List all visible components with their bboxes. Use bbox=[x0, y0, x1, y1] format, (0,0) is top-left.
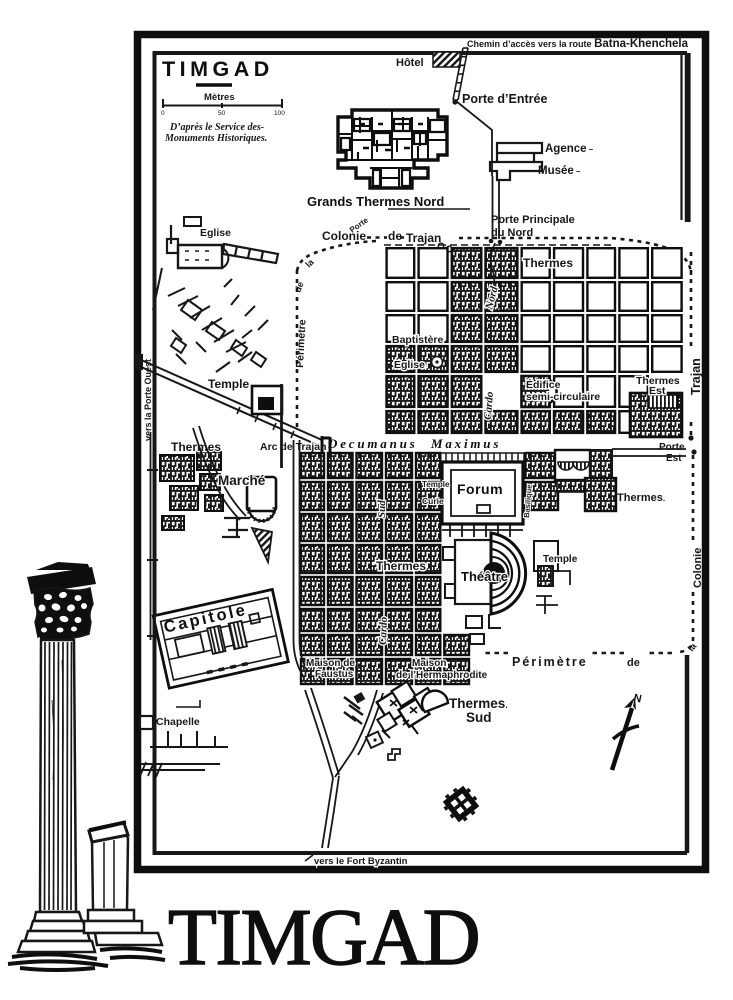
svg-text:Porte d’Entrée: Porte d’Entrée bbox=[462, 92, 547, 106]
svg-text:Périmètre: Périmètre bbox=[512, 655, 588, 669]
svg-text:Cardo: Cardo bbox=[482, 391, 496, 420]
svg-text:Thermes: Thermes bbox=[171, 440, 221, 454]
svg-text:Eglise: Eglise bbox=[394, 359, 425, 371]
svg-text:Est: Est bbox=[649, 385, 666, 397]
svg-text:Porte Principale: Porte Principale bbox=[491, 214, 575, 226]
svg-text:Hôtel: Hôtel bbox=[396, 57, 424, 69]
svg-text:Théâtre: Théâtre bbox=[461, 569, 508, 584]
svg-text:TIMGAD: TIMGAD bbox=[162, 57, 274, 81]
svg-text:Sud: Sud bbox=[466, 710, 492, 725]
svg-text:D’après le Service des-: D’après le Service des- bbox=[169, 122, 264, 133]
svg-text:Colonie: Colonie bbox=[692, 548, 704, 588]
svg-text:Maison de: Maison de bbox=[306, 658, 355, 669]
svg-text:de l’Hermaphrodite: de l’Hermaphrodite bbox=[396, 670, 488, 681]
svg-text:Colonie: Colonie bbox=[322, 229, 366, 243]
svg-text:Faustus: Faustus bbox=[315, 669, 354, 680]
svg-text:de: de bbox=[388, 229, 402, 243]
svg-text:Maison: Maison bbox=[412, 658, 446, 669]
svg-text:vers le Fort Byzantin: vers le Fort Byzantin bbox=[314, 856, 408, 867]
svg-text:Monuments Historiques.: Monuments Historiques. bbox=[164, 133, 267, 144]
svg-text:Porte: Porte bbox=[659, 442, 685, 453]
svg-text:0: 0 bbox=[161, 110, 165, 117]
svg-text:Mètres: Mètres bbox=[204, 92, 235, 103]
svg-text:Maximus: Maximus bbox=[430, 436, 501, 451]
svg-text:Thermes: Thermes bbox=[523, 256, 573, 270]
svg-text:Périmètre: Périmètre bbox=[294, 319, 309, 368]
svg-text:Chemin d’accès vers la route B: Chemin d’accès vers la route Batna-Khenc… bbox=[467, 38, 689, 50]
svg-text:Édifice: Édifice bbox=[526, 378, 561, 391]
svg-text:Eglise: Eglise bbox=[200, 227, 231, 239]
svg-text:Thermes.: Thermes. bbox=[449, 696, 508, 711]
svg-text:Thermes: Thermes bbox=[376, 559, 426, 573]
svg-text:Decumanus: Decumanus bbox=[327, 436, 418, 451]
svg-text:Temple: Temple bbox=[422, 480, 450, 489]
svg-text:Sud: Sud bbox=[376, 500, 388, 518]
svg-text:TIMGAD: TIMGAD bbox=[168, 894, 479, 982]
svg-text:Temple: Temple bbox=[208, 377, 249, 391]
svg-text:de: de bbox=[627, 657, 640, 669]
svg-text:Curie: Curie bbox=[422, 496, 444, 506]
svg-text:Agence –: Agence – bbox=[545, 143, 594, 155]
svg-text:Trajan: Trajan bbox=[689, 358, 703, 395]
svg-text:Trajan: Trajan bbox=[406, 231, 441, 245]
svg-text:Thermes.: Thermes. bbox=[617, 492, 665, 504]
svg-text:50: 50 bbox=[218, 110, 226, 117]
svg-text:Musée –: Musée – bbox=[538, 165, 581, 177]
svg-text:Forum: Forum bbox=[457, 481, 503, 497]
svg-text:Chapelle: Chapelle bbox=[156, 716, 200, 728]
svg-text:semi-circulaire: semi-circulaire bbox=[526, 391, 600, 403]
svg-text:Temple: Temple bbox=[543, 554, 578, 565]
svg-text:Grands Thermes Nord: Grands Thermes Nord bbox=[307, 194, 444, 209]
svg-text:100: 100 bbox=[274, 110, 285, 117]
svg-text:Marché: Marché bbox=[218, 473, 266, 488]
svg-text:Est: Est bbox=[666, 453, 682, 464]
svg-text:Baptistère: Baptistère bbox=[392, 334, 444, 346]
svg-text:vers la Porte Ouest: vers la Porte Ouest bbox=[143, 359, 153, 441]
svg-text:Cardo: Cardo bbox=[377, 616, 390, 645]
